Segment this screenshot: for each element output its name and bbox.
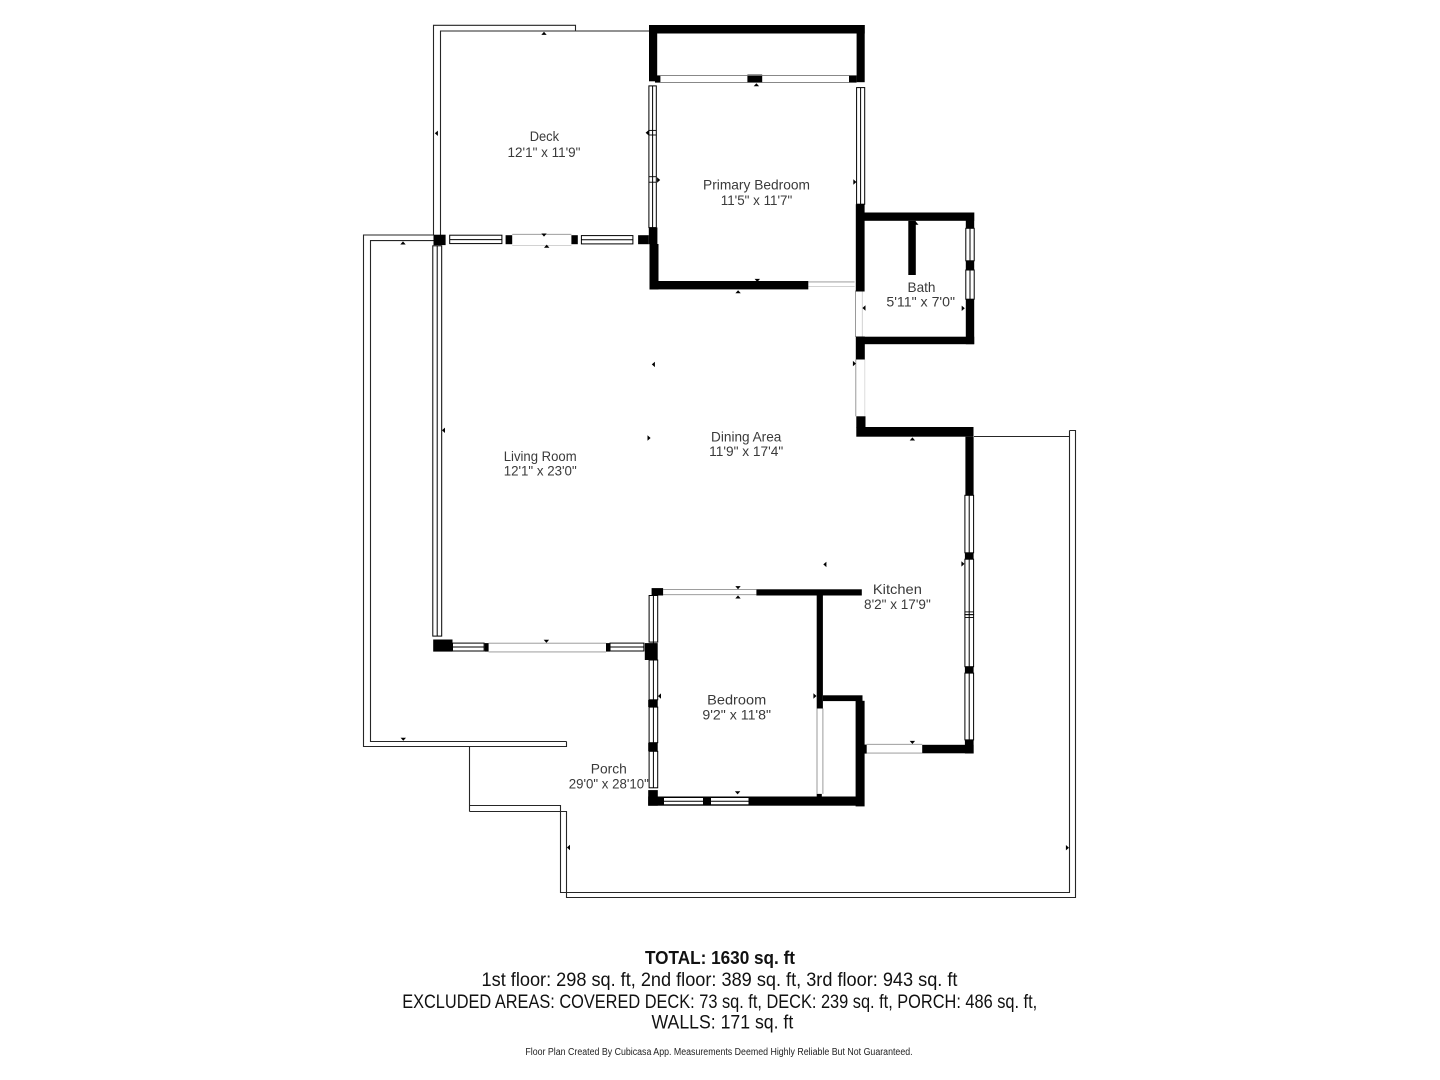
svg-text:Kitchen: Kitchen [873,581,922,597]
svg-text:Bedroom: Bedroom [707,692,766,708]
svg-text:Primary Bedroom: Primary Bedroom [703,177,810,193]
svg-text:Deck: Deck [530,128,560,144]
svg-text:5'11" x 7'0": 5'11" x 7'0" [886,293,955,309]
svg-text:9'2" x 11'8": 9'2" x 11'8" [702,707,771,723]
svg-text:11'5" x 11'7": 11'5" x 11'7" [721,192,793,208]
svg-text:Floor Plan Created By Cubicasa: Floor Plan Created By Cubicasa App. Meas… [525,1047,912,1058]
svg-text:WALLS: 171 sq. ft: WALLS: 171 sq. ft [652,1012,794,1033]
svg-text:Living Room: Living Room [504,448,577,464]
svg-text:11'9" x 17'4": 11'9" x 17'4" [709,443,783,459]
svg-text:Porch: Porch [591,760,627,776]
svg-text:EXCLUDED AREAS: COVERED DECK:: EXCLUDED AREAS: COVERED DECK: 73 sq. ft,… [402,992,1037,1013]
svg-text:8'2" x 17'9": 8'2" x 17'9" [864,596,931,612]
svg-text:12'1" x 11'9": 12'1" x 11'9" [508,144,581,160]
svg-text:TOTAL: 1630 sq. ft: TOTAL: 1630 sq. ft [645,947,795,968]
svg-text:12'1" x 23'0": 12'1" x 23'0" [504,463,577,479]
svg-text:1st floor: 298 sq. ft, 2nd flo: 1st floor: 298 sq. ft, 2nd floor: 389 sq… [482,970,959,991]
svg-text:29'0" x 28'10": 29'0" x 28'10" [569,775,649,791]
